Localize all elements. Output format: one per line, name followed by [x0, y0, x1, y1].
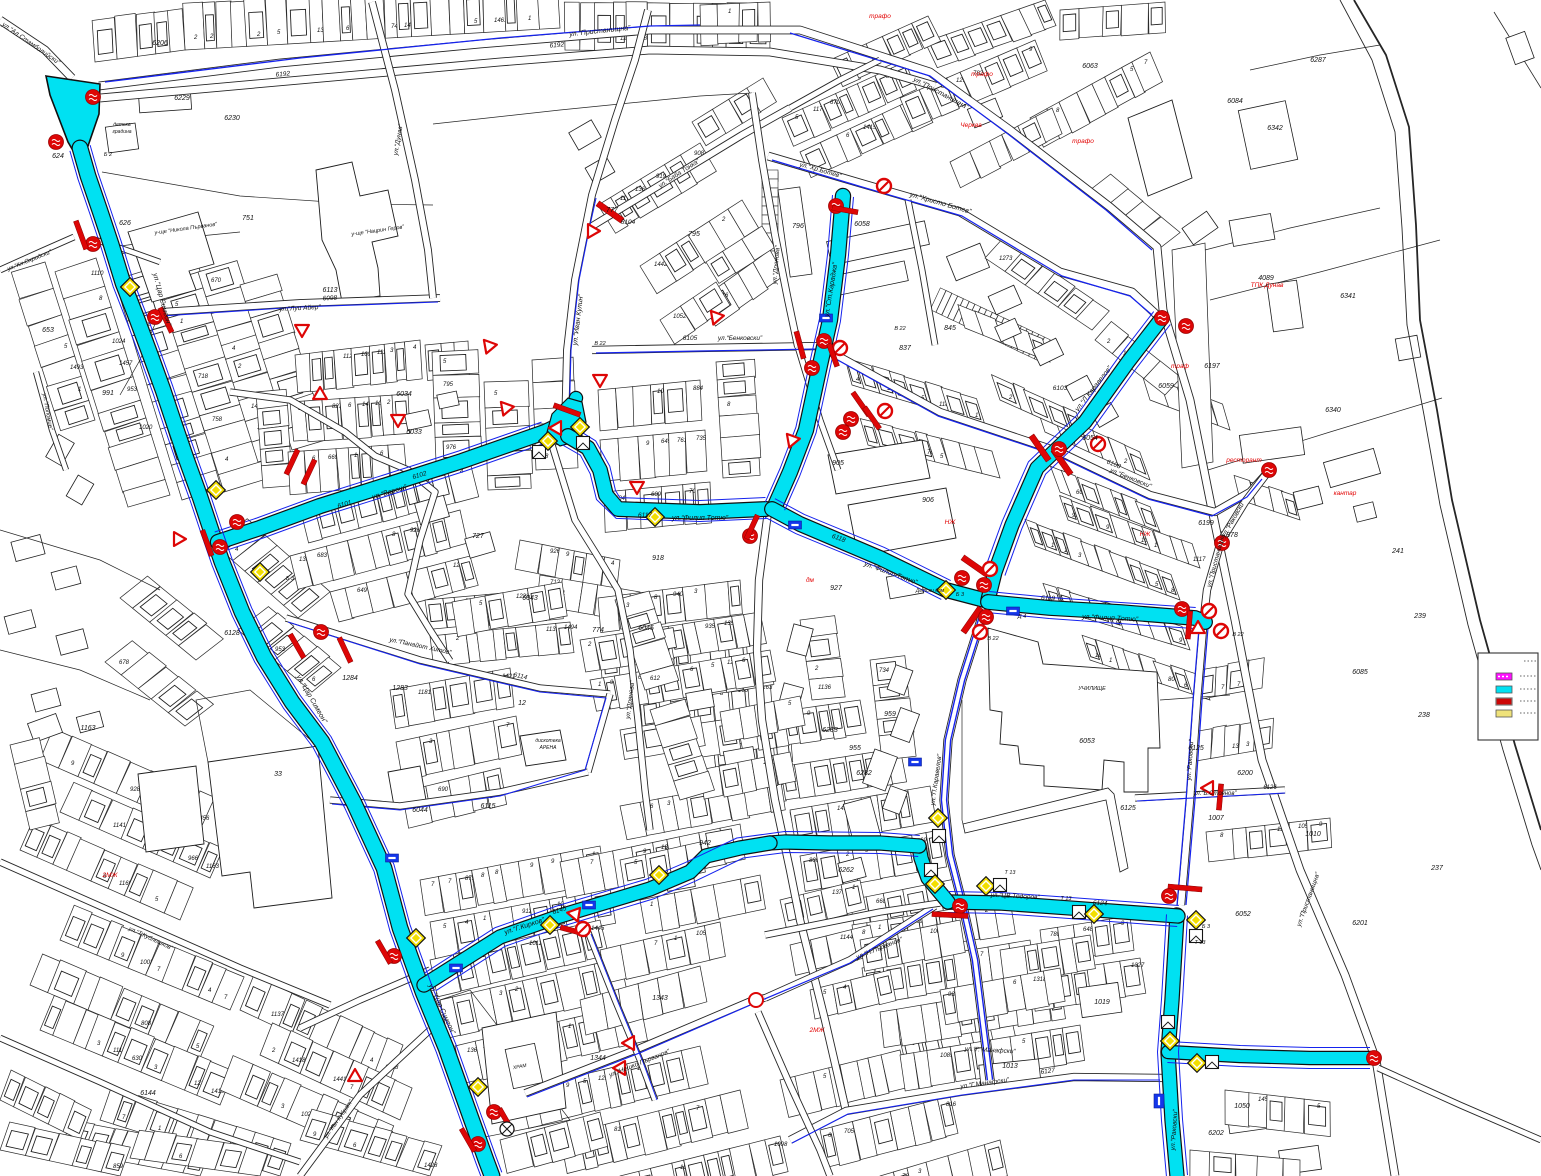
- svg-text:653: 653: [42, 327, 54, 334]
- svg-text:детска: детска: [113, 122, 130, 128]
- svg-text:718: 718: [198, 374, 209, 380]
- svg-text:1283: 1283: [392, 685, 408, 692]
- svg-text:6115: 6115: [480, 803, 495, 810]
- svg-text:1457: 1457: [119, 361, 133, 367]
- svg-text:609: 609: [651, 492, 662, 498]
- svg-text:трафо: трафо: [869, 13, 891, 20]
- svg-text:Т 13: Т 13: [1060, 896, 1072, 902]
- svg-text:6053: 6053: [1079, 738, 1095, 745]
- svg-text:6342: 6342: [1267, 125, 1283, 132]
- svg-text:6103: 6103: [1053, 385, 1068, 392]
- svg-text:Черква: Черква: [960, 122, 982, 129]
- svg-text:6054: 6054: [1082, 435, 1098, 442]
- svg-text:В 22: В 22: [987, 636, 998, 642]
- svg-text:1445: 1445: [591, 926, 605, 932]
- svg-text:В 22: В 22: [894, 326, 905, 332]
- svg-text:1010: 1010: [1305, 831, 1321, 838]
- svg-text:6105: 6105: [683, 335, 698, 342]
- svg-text:трафо: трафо: [971, 71, 993, 78]
- svg-text:878: 878: [1226, 532, 1238, 539]
- svg-text:1050: 1050: [1234, 1103, 1250, 1110]
- svg-text:624: 624: [52, 153, 64, 160]
- svg-text:1: 1: [650, 902, 653, 908]
- svg-text:6200: 6200: [1237, 770, 1253, 777]
- svg-text:808: 808: [141, 1021, 152, 1027]
- svg-text:690: 690: [438, 787, 449, 793]
- svg-text:6262: 6262: [838, 867, 854, 874]
- svg-text:В 22: В 22: [1232, 632, 1243, 638]
- svg-text:6340: 6340: [1325, 407, 1341, 414]
- svg-text:ул.“Бенковски”: ул.“Бенковски”: [717, 335, 763, 342]
- svg-text:1020: 1020: [139, 425, 153, 431]
- svg-text:1007: 1007: [1208, 815, 1225, 822]
- svg-text:1181: 1181: [418, 690, 431, 696]
- svg-text:2: 2: [256, 32, 261, 38]
- svg-text:2: 2: [1106, 339, 1111, 345]
- svg-text:2: 2: [386, 400, 391, 406]
- svg-text:1494: 1494: [564, 625, 578, 631]
- svg-text:6202: 6202: [1208, 1130, 1224, 1137]
- svg-text:1: 1: [354, 453, 357, 459]
- svg-text:НЖ: НЖ: [1140, 531, 1152, 538]
- svg-text:1: 1: [78, 387, 81, 393]
- svg-text:6117: 6117: [638, 512, 652, 519]
- svg-text:777: 777: [606, 207, 619, 214]
- svg-text:2МЖ: 2МЖ: [809, 1027, 826, 1034]
- svg-text:6043: 6043: [522, 595, 538, 602]
- svg-text:ТПК Дунав: ТПК Дунав: [1251, 282, 1284, 289]
- svg-text:траф: траф: [1171, 363, 1190, 370]
- svg-text:795: 795: [688, 231, 700, 238]
- svg-text:2: 2: [514, 987, 519, 993]
- svg-text:В 22: В 22: [594, 341, 605, 347]
- svg-text:трафо: трафо: [1072, 138, 1094, 145]
- svg-text:884: 884: [693, 386, 704, 392]
- svg-text:2: 2: [193, 35, 198, 41]
- svg-text:918: 918: [652, 555, 664, 562]
- svg-text:6052: 6052: [1235, 911, 1251, 918]
- svg-text:1: 1: [975, 413, 978, 419]
- svg-text:6144: 6144: [140, 1090, 156, 1097]
- svg-text:906: 906: [922, 497, 934, 504]
- svg-text:940: 940: [673, 592, 684, 598]
- svg-text:2: 2: [587, 642, 592, 648]
- svg-text:1: 1: [1064, 548, 1067, 554]
- svg-text:Д 4: Д 4: [1017, 614, 1026, 620]
- svg-text:1284: 1284: [342, 675, 358, 682]
- svg-text:6197: 6197: [1204, 363, 1221, 370]
- svg-text:1117: 1117: [1193, 557, 1206, 563]
- svg-text:837: 837: [899, 345, 912, 352]
- svg-text:670: 670: [211, 278, 222, 284]
- svg-text:758: 758: [212, 417, 223, 423]
- svg-text:НЖ: НЖ: [945, 519, 957, 526]
- svg-text:6084: 6084: [1227, 98, 1243, 105]
- svg-text:1163: 1163: [80, 725, 95, 732]
- svg-text:6033: 6033: [406, 429, 422, 436]
- svg-text:6199: 6199: [1198, 520, 1214, 527]
- svg-text:1144: 1144: [840, 935, 854, 941]
- svg-text:6063: 6063: [1082, 63, 1098, 70]
- svg-text:959: 959: [884, 711, 896, 718]
- svg-text:2: 2: [1008, 395, 1013, 401]
- svg-text:6085: 6085: [1352, 669, 1368, 676]
- svg-text:1: 1: [180, 319, 183, 325]
- svg-text:1: 1: [878, 925, 881, 931]
- svg-text:1110: 1110: [91, 271, 104, 277]
- svg-text:1: 1: [674, 936, 677, 942]
- svg-text:6287: 6287: [1310, 57, 1327, 64]
- svg-text:935: 935: [705, 624, 716, 630]
- svg-text:1: 1: [598, 682, 601, 688]
- svg-text:241: 241: [1391, 548, 1404, 555]
- svg-text:УЧИЛИЩЕ: УЧИЛИЩЕ: [1077, 686, 1106, 692]
- svg-text:6192: 6192: [275, 70, 290, 78]
- svg-text:Т 13: Т 13: [1004, 870, 1016, 876]
- svg-text:12: 12: [518, 700, 526, 707]
- svg-text:Т 13: Т 13: [1194, 940, 1206, 946]
- svg-text:859: 859: [113, 1164, 124, 1170]
- svg-text:6124: 6124: [1093, 900, 1108, 908]
- svg-text:2: 2: [271, 1048, 276, 1054]
- svg-text:683: 683: [317, 553, 328, 559]
- svg-text:727: 727: [472, 533, 485, 540]
- svg-text:1327: 1327: [1131, 963, 1145, 969]
- svg-text:816: 816: [946, 1102, 957, 1108]
- svg-text:градина: градина: [112, 129, 131, 135]
- svg-text:2: 2: [721, 217, 726, 223]
- svg-text:6098: 6098: [323, 295, 338, 303]
- svg-text:6283: 6283: [822, 727, 838, 734]
- svg-text:6059: 6059: [1158, 383, 1174, 390]
- svg-text:735: 735: [696, 436, 707, 442]
- svg-text:751: 751: [242, 215, 254, 222]
- svg-text:239: 239: [1413, 613, 1426, 620]
- svg-text:1: 1: [158, 1126, 161, 1132]
- svg-text:1: 1: [728, 9, 731, 15]
- svg-text:2МЖ: 2МЖ: [102, 872, 119, 879]
- svg-text:649: 649: [357, 588, 368, 594]
- svg-text:ресторант: ресторант: [1225, 457, 1262, 464]
- svg-text:966: 966: [188, 856, 199, 862]
- svg-text:1: 1: [568, 1024, 571, 1030]
- svg-text:6113: 6113: [322, 287, 337, 294]
- svg-text:дм: дм: [806, 576, 815, 584]
- svg-text:Б 3: Б 3: [286, 576, 295, 582]
- svg-text:1141: 1141: [113, 823, 126, 829]
- svg-text:612: 612: [650, 676, 661, 682]
- svg-text:626: 626: [119, 220, 131, 227]
- svg-text:678: 678: [119, 660, 130, 666]
- svg-text:953: 953: [127, 387, 138, 393]
- svg-text:238: 238: [1417, 712, 1430, 719]
- svg-text:6125: 6125: [1188, 745, 1204, 752]
- svg-text:237: 237: [1430, 865, 1444, 872]
- svg-text:796: 796: [792, 223, 804, 230]
- svg-text:705: 705: [844, 1129, 855, 1135]
- svg-text:2: 2: [209, 34, 214, 40]
- svg-text:ул.“Филип Тотю”: ул.“Филип Тотю”: [671, 515, 729, 522]
- svg-text:1024: 1024: [112, 339, 126, 345]
- svg-text:6104: 6104: [621, 219, 636, 226]
- svg-text:1098: 1098: [774, 1142, 788, 1148]
- svg-text:1493: 1493: [70, 365, 84, 371]
- svg-text:дискотека: дискотека: [535, 738, 560, 744]
- svg-text:Детски дом: Детски дом: [915, 588, 945, 594]
- svg-text:1: 1: [528, 16, 531, 22]
- svg-text:1343: 1343: [652, 995, 668, 1002]
- svg-text:774: 774: [592, 627, 604, 634]
- svg-text:1: 1: [483, 916, 486, 922]
- svg-text:955: 955: [849, 745, 861, 752]
- svg-text:976: 976: [446, 445, 457, 451]
- svg-text:6201: 6201: [1352, 920, 1368, 927]
- svg-text:1019: 1019: [1094, 999, 1110, 1006]
- svg-text:6230: 6230: [224, 115, 240, 122]
- svg-text:4089: 4089: [1258, 275, 1274, 282]
- svg-text:кантар: кантар: [1334, 490, 1357, 497]
- svg-text:795: 795: [443, 382, 454, 388]
- svg-text:905: 905: [832, 460, 844, 467]
- svg-text:845: 845: [944, 325, 956, 332]
- svg-text:Б 3: Б 3: [956, 592, 965, 598]
- svg-text:6044: 6044: [412, 807, 428, 814]
- svg-text:6034: 6034: [396, 391, 412, 398]
- svg-text:ул.“Б.Стоянов”: ул.“Б.Стоянов”: [1193, 791, 1238, 797]
- svg-text:1: 1: [852, 885, 855, 891]
- svg-text:6192: 6192: [549, 41, 564, 49]
- svg-text:1428: 1428: [424, 1163, 438, 1169]
- svg-text:1344: 1344: [590, 1055, 606, 1062]
- svg-text:1: 1: [1051, 543, 1054, 549]
- svg-text:Б 2: Б 2: [104, 152, 112, 158]
- svg-text:1163: 1163: [206, 864, 220, 870]
- svg-text:1052: 1052: [673, 314, 687, 320]
- svg-text:942: 942: [699, 840, 711, 847]
- svg-text:6058: 6058: [854, 221, 870, 228]
- svg-text:6045: 6045: [638, 625, 654, 632]
- svg-text:927: 927: [830, 585, 843, 592]
- svg-text:1136: 1136: [818, 685, 832, 691]
- svg-text:2: 2: [237, 364, 242, 370]
- svg-text:6125: 6125: [1120, 805, 1136, 812]
- svg-text:6229: 6229: [174, 95, 190, 102]
- svg-text:6128: 6128: [224, 630, 240, 637]
- svg-text:2: 2: [814, 666, 819, 672]
- svg-text:1013: 1013: [1002, 1063, 1018, 1070]
- svg-text:1273: 1273: [999, 256, 1013, 262]
- svg-text:991: 991: [102, 390, 114, 397]
- svg-text:6206: 6206: [152, 40, 168, 47]
- svg-text:АРЕНА: АРЕНА: [539, 745, 558, 751]
- svg-text:6126: 6126: [1263, 785, 1277, 791]
- svg-text:6119: 6119: [1041, 595, 1056, 603]
- svg-text:33: 33: [274, 771, 282, 778]
- svg-text:734: 734: [879, 668, 890, 674]
- svg-text:6341: 6341: [1340, 293, 1356, 300]
- svg-text:630: 630: [132, 1056, 143, 1062]
- svg-text:Б 3: Б 3: [1202, 924, 1211, 930]
- svg-text:6282: 6282: [856, 770, 872, 777]
- svg-text:2: 2: [1123, 459, 1128, 465]
- svg-text:1: 1: [1109, 658, 1112, 664]
